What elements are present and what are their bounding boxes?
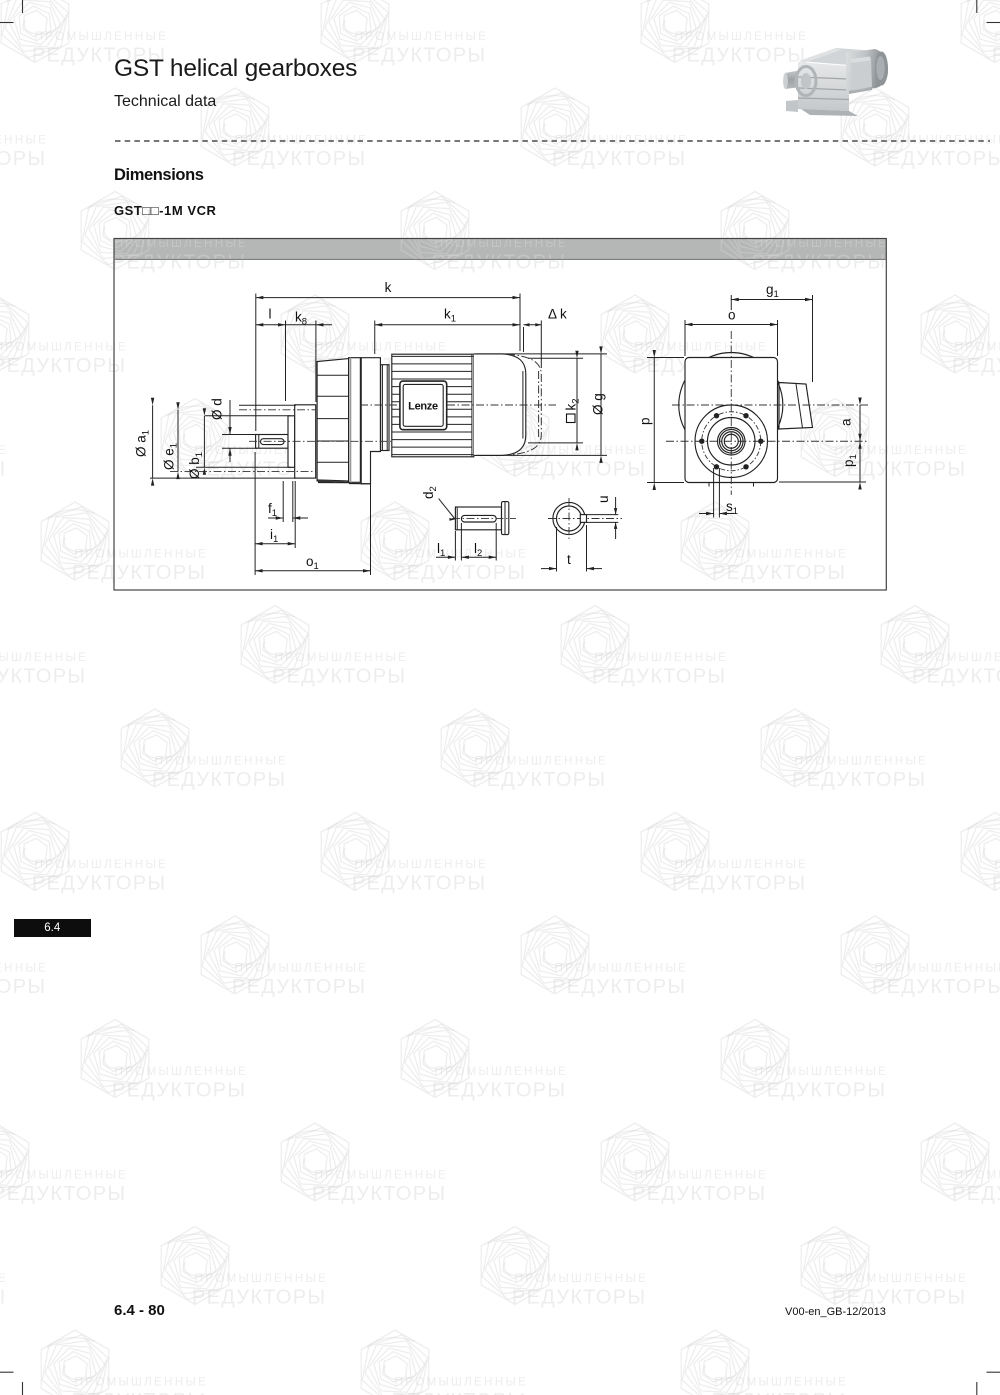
svg-text:Ø e1: Ø e1 — [162, 443, 180, 470]
svg-text:Ø a1: Ø a1 — [134, 430, 152, 457]
svg-text:d2: d2 — [421, 486, 439, 499]
svg-text:s1: s1 — [726, 499, 738, 517]
svg-text:Δ k: Δ k — [548, 307, 567, 322]
svg-text:p: p — [638, 417, 653, 425]
svg-text:f1: f1 — [268, 501, 277, 519]
svg-text:p1: p1 — [841, 454, 859, 467]
svg-text:o: o — [728, 308, 736, 323]
svg-text:k2: k2 — [564, 398, 582, 410]
svg-text:l: l — [269, 307, 272, 322]
svg-text:Ø b1: Ø b1 — [187, 452, 205, 479]
svg-text:a: a — [839, 418, 854, 426]
svg-text:i1: i1 — [270, 527, 278, 545]
svg-text:Ø g: Ø g — [591, 393, 606, 415]
svg-text:l2: l2 — [474, 541, 482, 559]
svg-text:t: t — [567, 552, 571, 567]
svg-text:u: u — [596, 495, 611, 503]
svg-text:k: k — [385, 280, 392, 295]
svg-text:g1: g1 — [766, 282, 779, 300]
svg-text:l1: l1 — [437, 541, 445, 559]
svg-text:Lenze: Lenze — [408, 401, 438, 413]
svg-text:o1: o1 — [306, 554, 319, 572]
svg-text:k1: k1 — [444, 307, 456, 325]
svg-text:Ø d: Ø d — [210, 398, 225, 420]
